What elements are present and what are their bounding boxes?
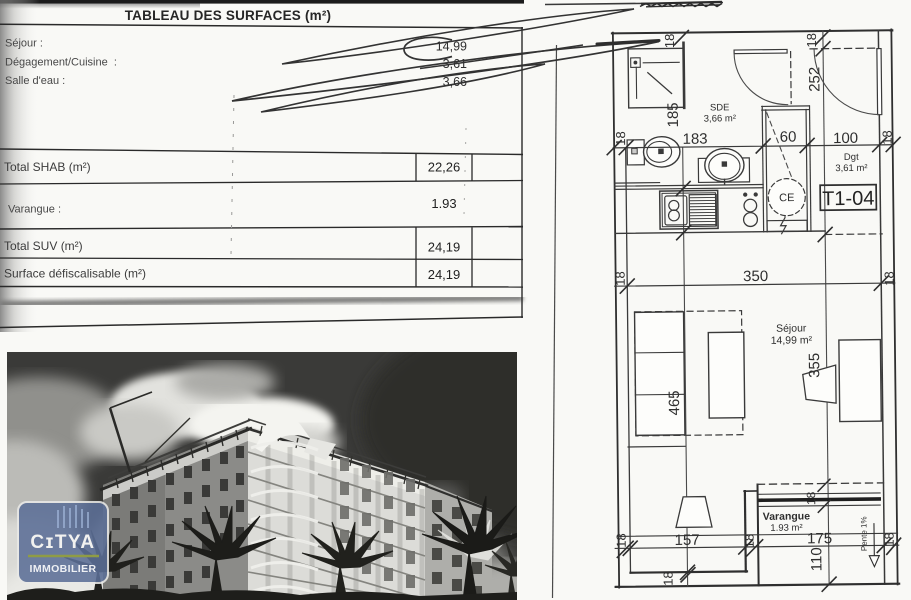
svg-text:465: 465 <box>666 390 683 415</box>
svg-text:175: 175 <box>807 530 832 547</box>
svg-text:22,26: 22,26 <box>428 160 461 175</box>
svg-text:Séjour :: Séjour : <box>5 38 43 50</box>
svg-text:3,66 m²: 3,66 m² <box>704 113 736 124</box>
svg-text:185: 185 <box>665 102 682 127</box>
svg-text:Varangue: Varangue <box>763 510 811 523</box>
svg-text:24,19: 24,19 <box>428 267 461 282</box>
svg-text:110: 110 <box>808 547 825 571</box>
svg-text:CɪTYA: CɪTYA <box>30 532 95 553</box>
svg-text:1.93: 1.93 <box>431 196 456 211</box>
svg-text:18: 18 <box>882 271 897 286</box>
svg-text:18: 18 <box>662 34 677 49</box>
svg-text:100: 100 <box>833 130 858 147</box>
svg-text:18: 18 <box>804 33 819 48</box>
svg-text:18: 18 <box>660 571 675 586</box>
svg-text:18: 18 <box>742 534 757 549</box>
svg-text:18: 18 <box>613 131 628 146</box>
svg-text:SDE: SDE <box>710 102 730 113</box>
svg-text:157: 157 <box>675 532 700 549</box>
svg-text:T1-04: T1-04 <box>822 188 874 211</box>
svg-text:183: 183 <box>682 131 707 148</box>
svg-text:Séjour: Séjour <box>776 322 807 334</box>
svg-text:Dgt: Dgt <box>844 152 859 163</box>
svg-text:24,19: 24,19 <box>428 240 461 255</box>
svg-text:3,61 m²: 3,61 m² <box>835 163 867 174</box>
svg-text:252: 252 <box>806 67 823 92</box>
svg-text:TABLEAU DES SURFACES (m²): TABLEAU DES SURFACES (m²) <box>125 8 332 23</box>
svg-text:350: 350 <box>743 268 768 285</box>
svg-text:18: 18 <box>613 271 628 286</box>
svg-text:Dégagement/Cuisine :: Dégagement/Cuisine : <box>5 57 117 69</box>
svg-text:CE: CE <box>779 192 794 204</box>
svg-text:Pente 1%: Pente 1% <box>859 516 868 551</box>
svg-text:18: 18 <box>614 533 629 548</box>
svg-text:60: 60 <box>780 129 797 146</box>
svg-text:18: 18 <box>879 130 894 145</box>
svg-text:Varangue :: Varangue : <box>8 204 61 216</box>
svg-text:18: 18 <box>882 532 897 547</box>
svg-text:Total SUV (m²): Total SUV (m²) <box>4 239 83 253</box>
svg-text:IMMOBILIER: IMMOBILIER <box>30 563 97 575</box>
svg-text:1.93 m²: 1.93 m² <box>770 522 802 533</box>
svg-text:Surface défiscalisable (m²): Surface défiscalisable (m²) <box>4 267 146 281</box>
svg-text:18: 18 <box>804 491 818 505</box>
svg-text:14,99 m²: 14,99 m² <box>771 334 813 346</box>
svg-text:Total SHAB (m²): Total SHAB (m²) <box>4 160 91 174</box>
svg-text:Salle d'eau :: Salle d'eau : <box>5 75 65 87</box>
svg-text:355: 355 <box>806 353 823 378</box>
